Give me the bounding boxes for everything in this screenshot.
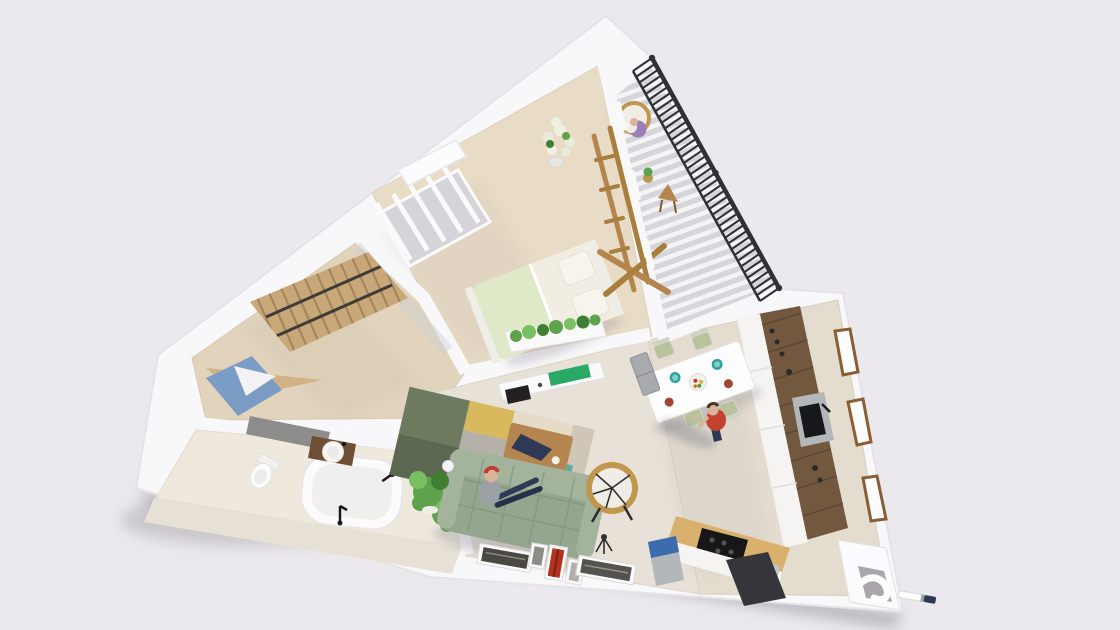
plant bbox=[590, 315, 601, 326]
pot bbox=[422, 506, 438, 514]
basin-inner bbox=[327, 446, 339, 458]
plant bbox=[522, 325, 536, 339]
floorplan-stage bbox=[0, 0, 1120, 630]
rattan-ring-chair bbox=[589, 465, 635, 522]
plant bbox=[537, 324, 549, 336]
foliage bbox=[644, 168, 653, 177]
railing-post bbox=[712, 170, 718, 176]
balcony-plant bbox=[643, 168, 653, 184]
railing-post bbox=[776, 285, 782, 291]
basin-tap bbox=[342, 442, 346, 446]
foliage bbox=[431, 472, 449, 490]
pot bbox=[548, 157, 564, 167]
blossom bbox=[562, 148, 571, 157]
leaves bbox=[562, 132, 570, 140]
plant bbox=[549, 320, 563, 334]
plant bbox=[510, 330, 522, 342]
art-piece-small bbox=[528, 543, 548, 569]
apartment-3d-render bbox=[0, 0, 1120, 630]
person-head bbox=[630, 118, 638, 126]
stool-top bbox=[601, 534, 607, 540]
deco-object bbox=[538, 383, 542, 387]
blossom bbox=[551, 117, 561, 127]
foliage bbox=[409, 471, 427, 489]
plant bbox=[564, 318, 576, 330]
railing-post bbox=[649, 55, 655, 61]
faucet-base bbox=[338, 521, 343, 526]
leaves bbox=[546, 140, 554, 148]
tub-basin bbox=[310, 462, 395, 522]
plant bbox=[577, 316, 590, 329]
sphere-lamp bbox=[443, 461, 454, 472]
